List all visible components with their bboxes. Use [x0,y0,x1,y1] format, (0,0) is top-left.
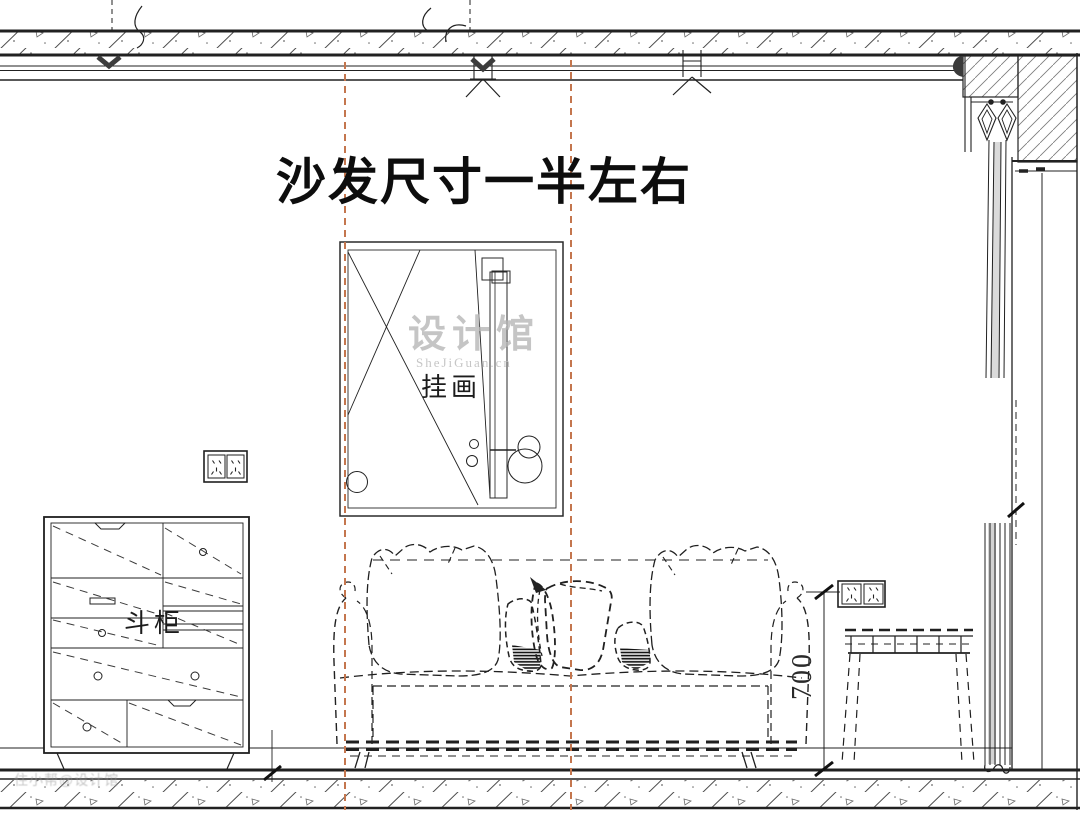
watermark-site: SheJiGuan.cn [416,356,512,369]
hanger-chevron-icon [98,57,120,66]
right-wall-section [953,53,1077,810]
watermark-brand: 设计馆 [408,316,540,354]
cabinet-leg [57,753,234,769]
cabinet-label: 斗柜 [124,611,184,637]
curtain-rod-dot [1000,99,1006,105]
curtain [985,140,1010,773]
picture-frame-label: 挂画 [421,375,481,401]
ceiling-section [0,31,1080,80]
sofa-leg [355,752,756,768]
annotation-title: 沙发尺寸一半左右 [276,157,692,207]
cad-linework [0,0,1080,815]
floor-section [0,748,1080,808]
dimension-tick [264,766,281,780]
side-table [842,630,974,763]
dresser-cabinet [44,517,249,769]
wall-outlet-left [204,451,247,482]
watermark-corner: 住小帮@设计馆 [14,773,119,787]
hanger-chevron-icon [472,59,494,69]
dimension-text-700: 700 [789,652,817,700]
curtain-rod-dot [988,99,994,105]
pillow-fold-arrow [530,577,546,593]
floor-dimension-tick-left [264,730,281,782]
wall-outlet-right [838,581,885,607]
elevation-drawing: 沙发尺寸一半左右 挂画 斗柜 700 设计馆 SheJiGuan.cn 住小帮@… [0,0,1080,815]
crown-molding [953,56,963,77]
